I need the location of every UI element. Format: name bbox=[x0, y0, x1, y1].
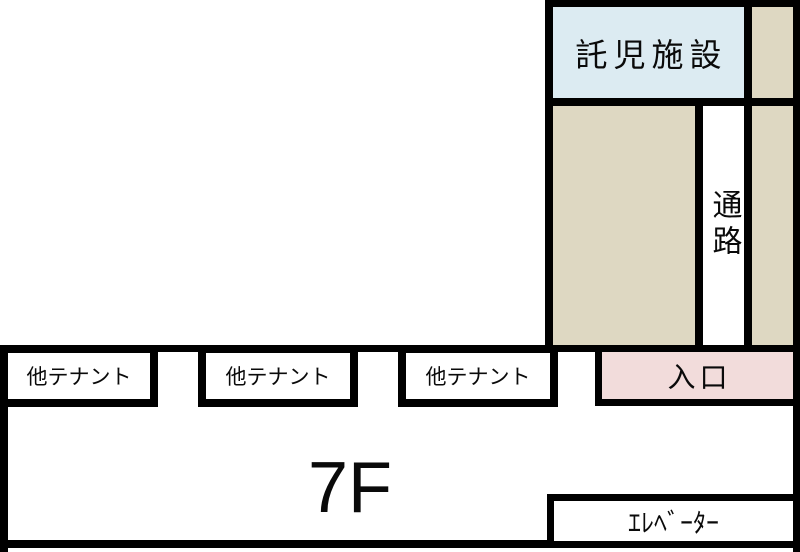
room-tenant-3-label: 他テナント bbox=[426, 361, 531, 391]
room-corridor: 通路 bbox=[703, 105, 744, 345]
room-tenant-3: 他テナント bbox=[398, 345, 558, 407]
wall-right bbox=[793, 0, 800, 552]
room-childcare: 託児施設 bbox=[553, 7, 744, 98]
room-tenant-1: 他テナント bbox=[0, 345, 158, 407]
room-right-column bbox=[752, 7, 793, 345]
room-tenant-2: 他テナント bbox=[198, 345, 358, 407]
wall-corridor-right bbox=[744, 0, 752, 352]
wall-corridor-left bbox=[695, 98, 703, 352]
room-tenant-2-label: 他テナント bbox=[226, 361, 331, 391]
room-upper-block bbox=[553, 105, 695, 345]
wall-strip-left bbox=[545, 0, 553, 352]
room-corridor-label: 通路 bbox=[702, 189, 746, 261]
room-elevator-label: ｴﾚﾍﾞｰﾀｰ bbox=[628, 503, 719, 540]
room-entrance-label: 入口 bbox=[663, 356, 731, 396]
wall-under-childcare bbox=[545, 98, 800, 106]
room-tenant-1-label: 他テナント bbox=[27, 361, 132, 391]
room-elevator: ｴﾚﾍﾞｰﾀｰ bbox=[547, 494, 800, 548]
floor-plan: 託児施設 通路 入口 他テナント 他テナント 他テナント ｴﾚﾍﾞｰﾀｰ 7F bbox=[0, 0, 800, 552]
floor-label: 7F bbox=[250, 452, 450, 524]
room-childcare-label: 託児施設 bbox=[569, 30, 727, 76]
wall-top bbox=[545, 0, 800, 7]
room-entrance: 入口 bbox=[595, 345, 800, 406]
